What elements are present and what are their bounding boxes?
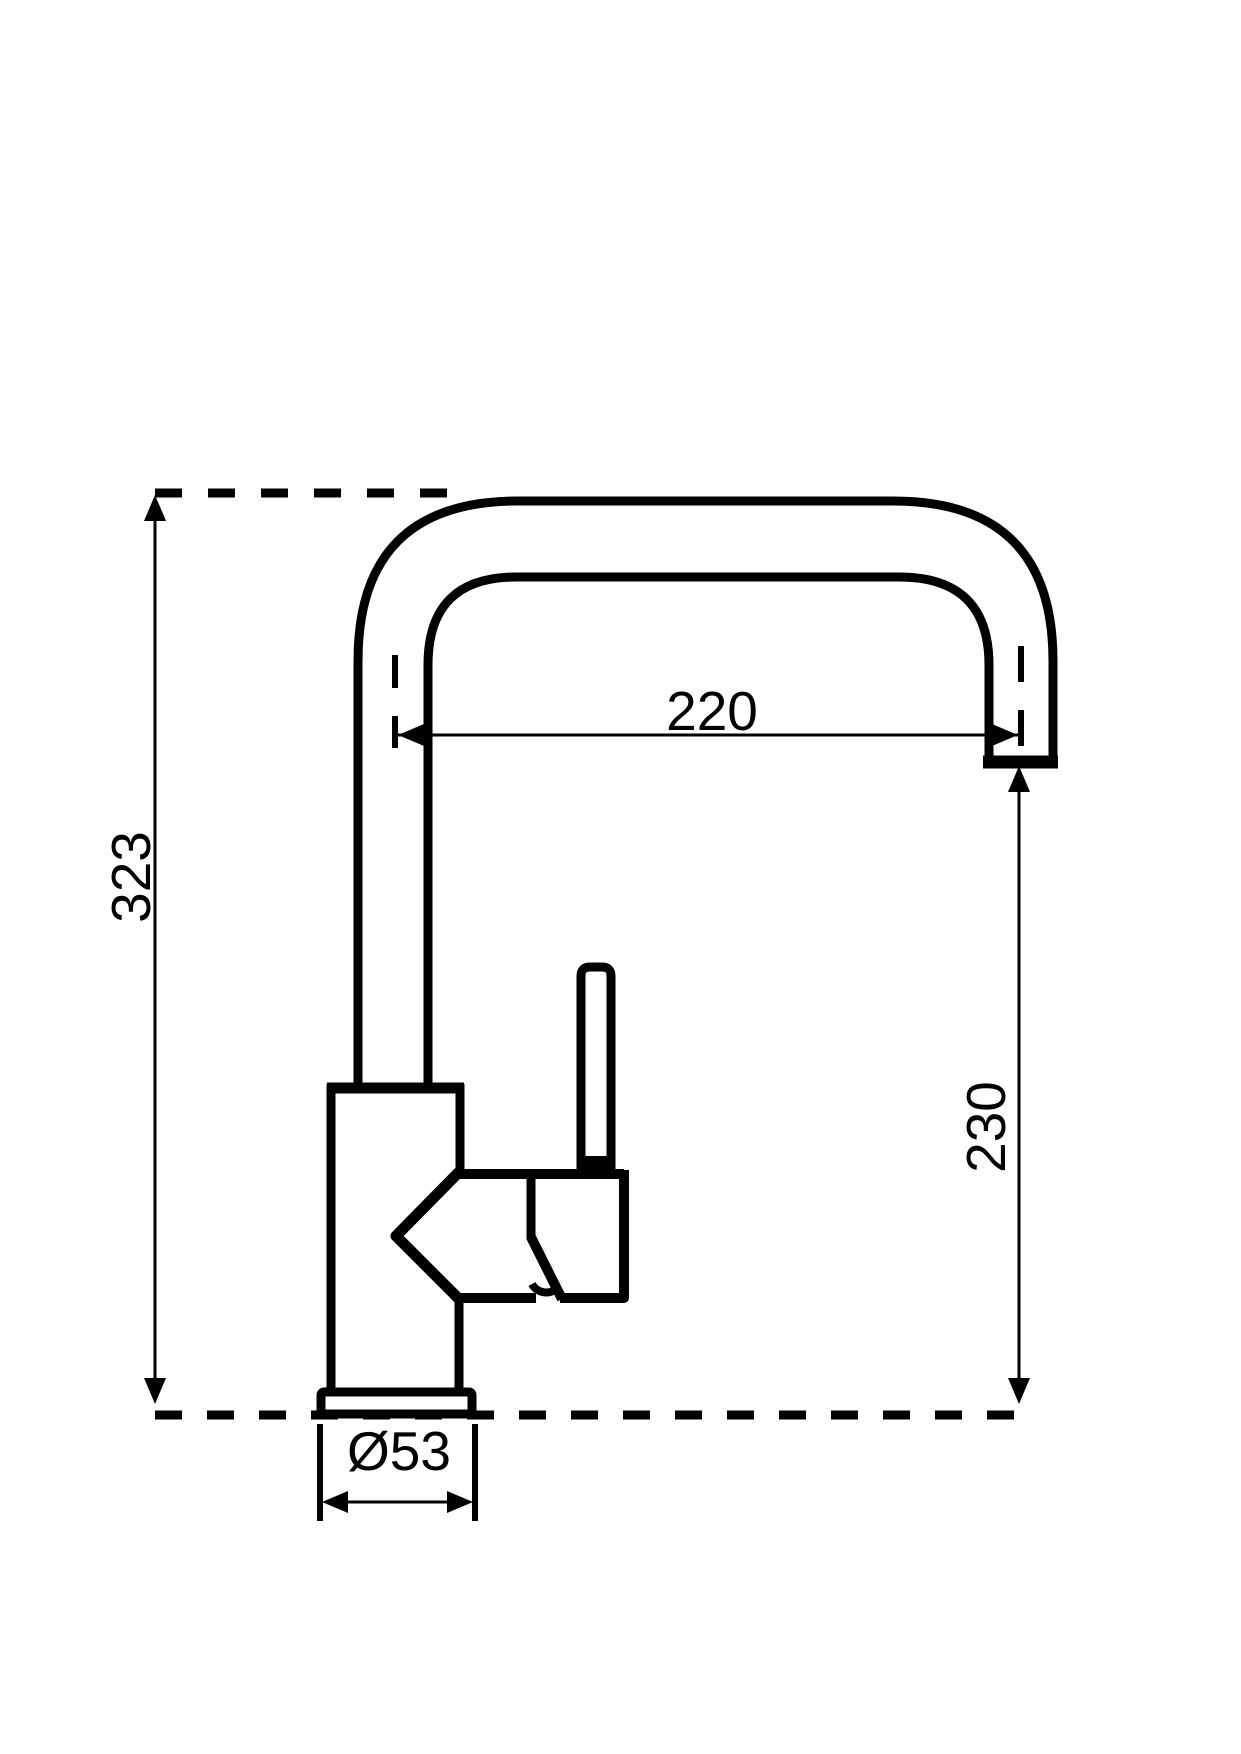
total-height-arrow-down	[144, 1378, 166, 1404]
housing-chevron	[396, 1172, 459, 1299]
base-diameter-label: Ø53	[347, 1420, 451, 1482]
dimension-spout-reach: 220	[395, 646, 1021, 748]
dimension-base-diameter: Ø53	[320, 1420, 475, 1521]
faucet-technical-drawing: 323 220 230 Ø53	[0, 0, 1241, 1754]
spout-reach-arrow-left	[398, 724, 424, 746]
total-height-label: 323	[100, 831, 162, 923]
dimension-outlet-height: 230	[955, 766, 1030, 1404]
faucet-outline	[321, 501, 1058, 1414]
faucet-technical-drawing-page: 323 220 230 Ø53	[0, 0, 1241, 1754]
reference-lines	[155, 493, 1037, 1415]
spout-reach-arrow-right	[992, 724, 1018, 746]
housing-right-and-bottom-edge	[560, 1170, 624, 1298]
base-plate	[321, 1392, 472, 1414]
outlet-height-arrow-up	[1008, 766, 1030, 792]
outlet-height-label: 230	[955, 1081, 1017, 1173]
handle-lever-base	[579, 1156, 613, 1176]
handle-lever	[581, 967, 611, 1176]
total-height-arrow-up	[144, 495, 166, 521]
spout-inner-profile	[428, 577, 989, 1092]
spout-reach-label: 220	[666, 680, 758, 742]
base-diameter-arrow-left	[322, 1491, 348, 1513]
outlet-height-arrow-down	[1008, 1378, 1030, 1404]
dimension-total-height: 323	[100, 495, 166, 1404]
base-diameter-arrow-right	[447, 1491, 473, 1513]
